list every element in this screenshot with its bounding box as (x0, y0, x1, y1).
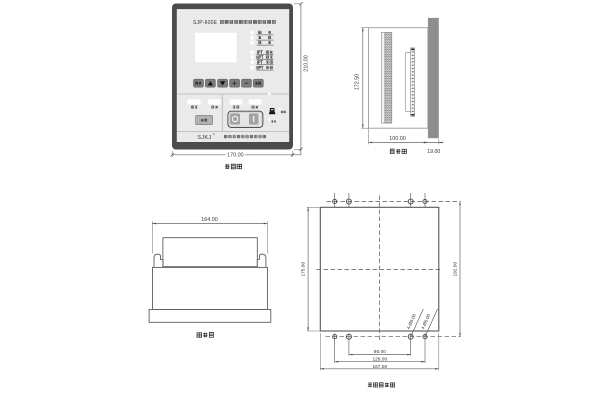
svg-text:19.00: 19.00 (427, 149, 440, 155)
svg-text:SJP-600E: SJP-600E (193, 20, 218, 26)
svg-text:170.00: 170.00 (227, 153, 244, 159)
svg-text:210.00: 210.00 (303, 55, 309, 72)
svg-text:86.00: 86.00 (374, 349, 386, 355)
svg-text:172.50: 172.50 (355, 74, 361, 90)
svg-text:192.00: 192.00 (452, 262, 458, 277)
svg-text:SJKJ: SJKJ (197, 135, 211, 141)
svg-text:175.00: 175.00 (300, 262, 306, 277)
svg-text:128.00: 128.00 (372, 357, 387, 363)
svg-text:100.00: 100.00 (389, 136, 406, 142)
svg-text:164.00: 164.00 (201, 217, 218, 223)
svg-text:167.00: 167.00 (372, 364, 387, 370)
